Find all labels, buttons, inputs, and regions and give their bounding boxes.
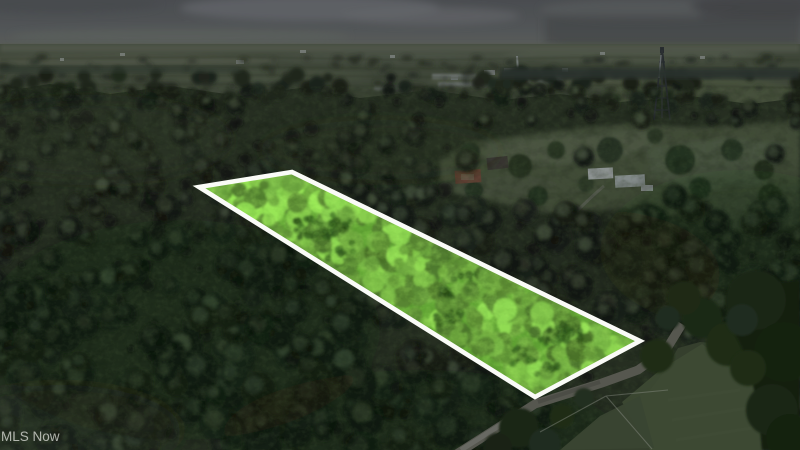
svg-text:MLS Now: MLS Now (1, 429, 60, 444)
